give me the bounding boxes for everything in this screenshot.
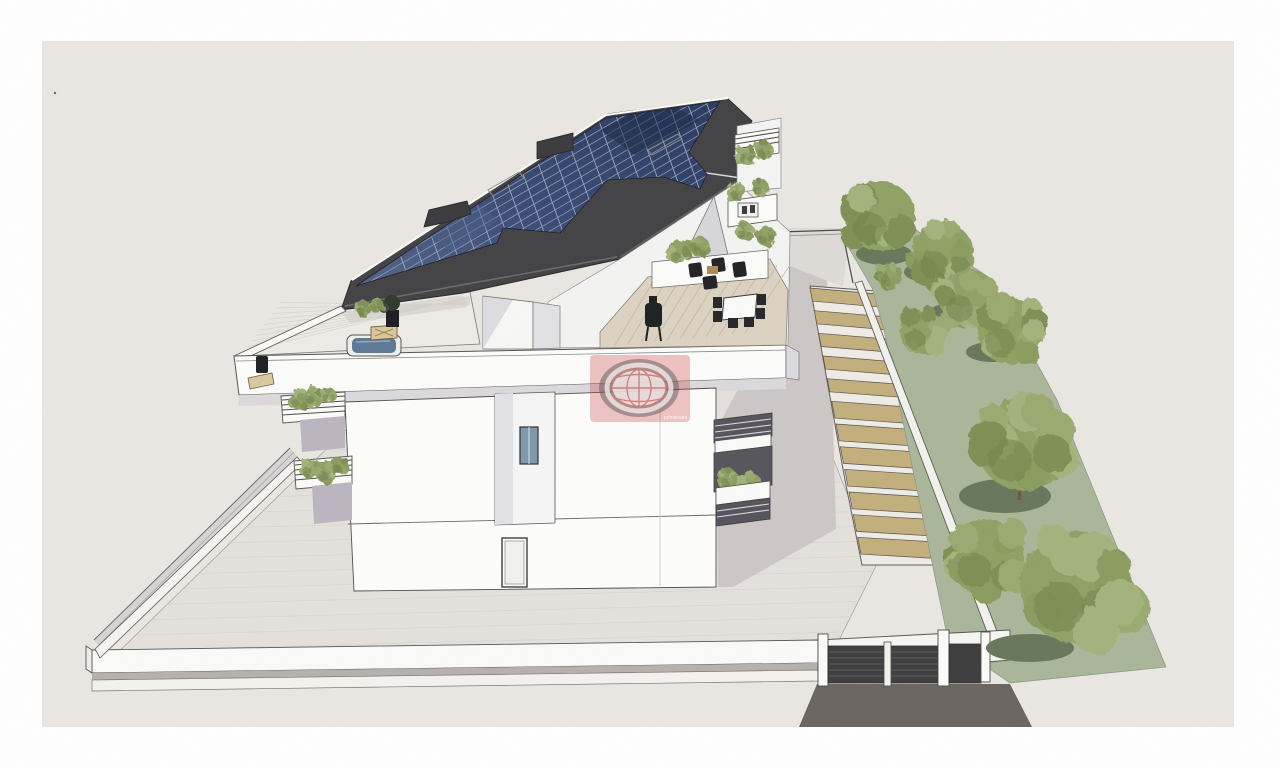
svg-text:primacasa: primacasa [664,415,687,421]
